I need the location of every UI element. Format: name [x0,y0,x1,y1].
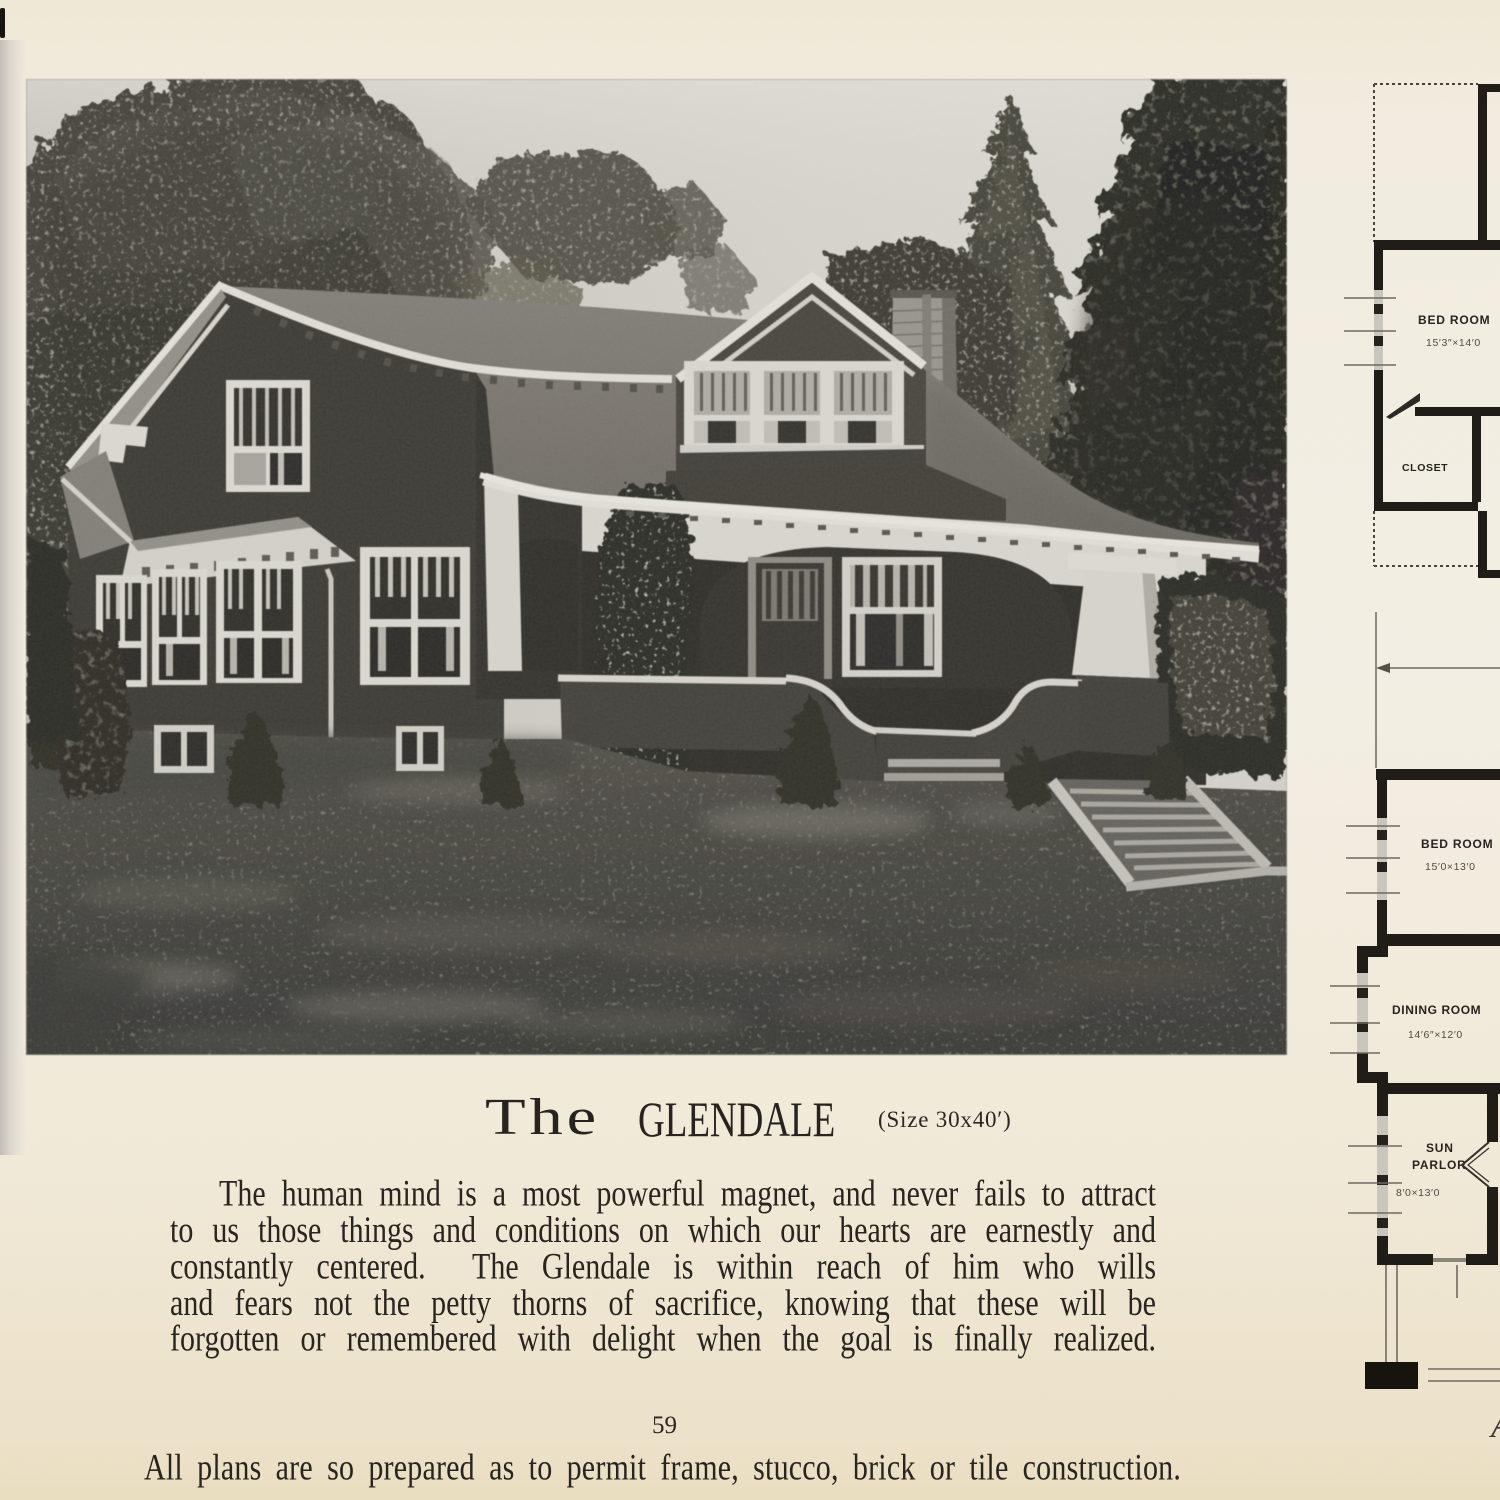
svg-text:BED ROOM: BED ROOM [1418,313,1490,327]
svg-text:SUN: SUN [1426,1141,1454,1155]
svg-text:BED ROOM: BED ROOM [1421,837,1493,851]
svg-text:CLOSET: CLOSET [1402,462,1448,474]
svg-text:DINING ROOM: DINING ROOM [1392,1003,1481,1017]
svg-text:PARLOR: PARLOR [1412,1158,1467,1172]
svg-text:15′3″×14′0: 15′3″×14′0 [1426,337,1481,349]
svg-text:8′0×13′0: 8′0×13′0 [1396,1187,1440,1199]
svg-text:14′6″×12′0: 14′6″×12′0 [1408,1029,1463,1041]
svg-text:15′0×13′0: 15′0×13′0 [1425,861,1476,873]
